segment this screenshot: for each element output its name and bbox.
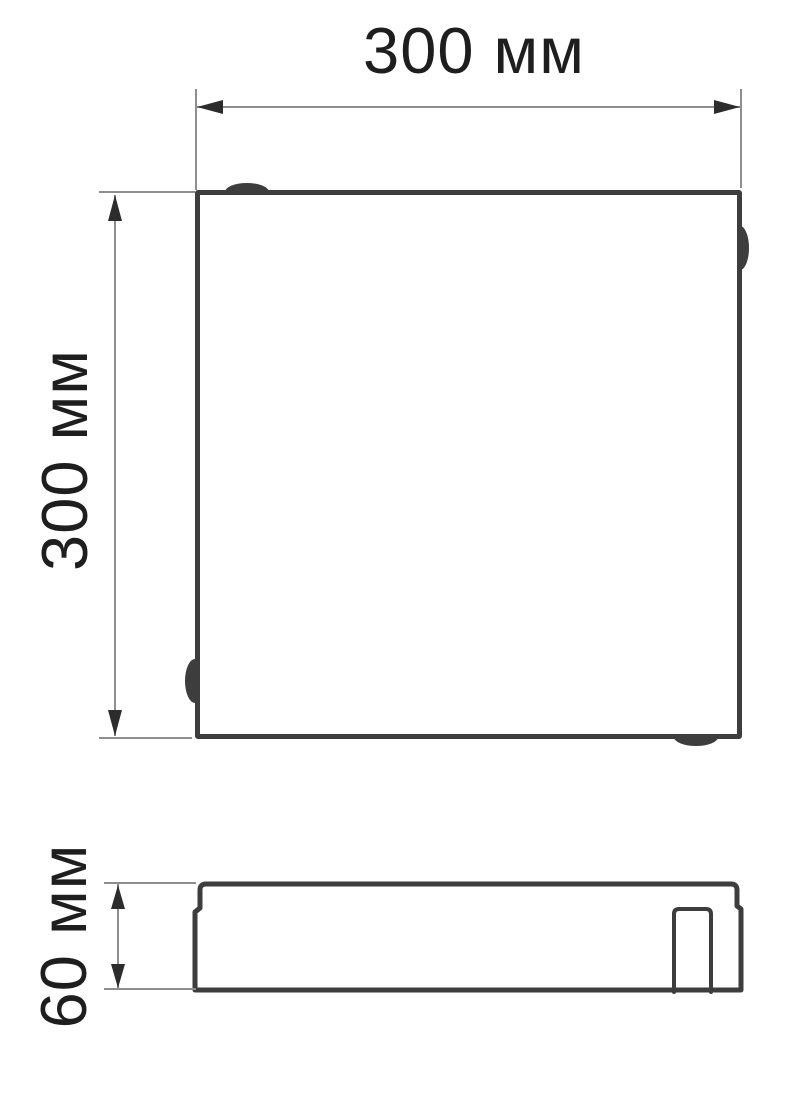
panel-side-outline bbox=[180, 868, 760, 1008]
panel-front-outline bbox=[195, 190, 742, 739]
width-dimension-label: 300 мм bbox=[349, 16, 599, 86]
thickness-dimension-label: 60 мм bbox=[29, 811, 99, 1061]
arrowhead-up-icon bbox=[111, 885, 125, 909]
extension-line-top-right bbox=[740, 89, 742, 188]
mounting-clip-left-icon bbox=[185, 659, 195, 703]
arrowhead-up-icon bbox=[108, 195, 122, 221]
height-dimension-line bbox=[114, 195, 116, 736]
dimension-drawing: 300 мм 300 мм 60 мм bbox=[0, 0, 812, 1114]
extension-line-left-top bbox=[99, 191, 195, 193]
arrowhead-left-icon bbox=[197, 100, 223, 114]
arrowhead-down-icon bbox=[108, 710, 122, 736]
extension-line-left-bottom bbox=[99, 737, 192, 739]
driver-box-path bbox=[674, 909, 711, 992]
side-profile-path bbox=[195, 884, 741, 990]
arrowhead-right-icon bbox=[714, 100, 740, 114]
arrowhead-down-icon bbox=[111, 964, 125, 988]
height-dimension-label: 300 мм bbox=[30, 335, 100, 585]
extension-line-side-bottom bbox=[104, 988, 196, 990]
width-dimension-line bbox=[197, 106, 740, 108]
